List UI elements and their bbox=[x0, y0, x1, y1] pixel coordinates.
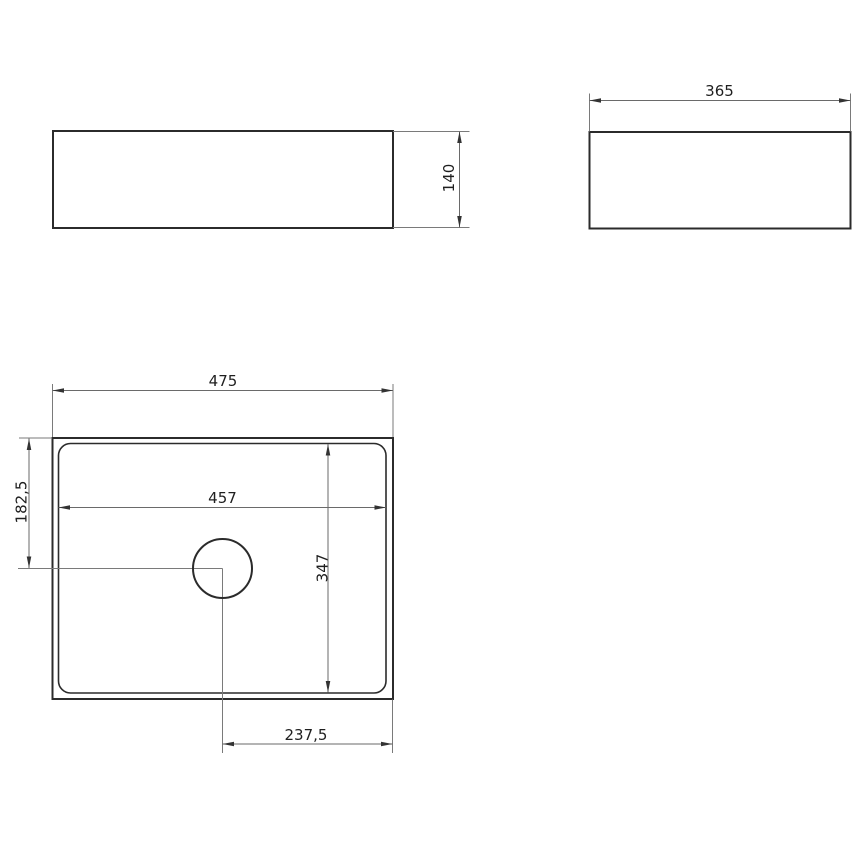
inner-depth-label: 347 bbox=[314, 554, 332, 583]
overall-width-label: 475 bbox=[209, 372, 238, 390]
front-view: 140 bbox=[53, 131, 470, 228]
front-height-label: 140 bbox=[440, 164, 458, 193]
side-view-outline bbox=[590, 132, 851, 229]
inner-width-label: 457 bbox=[208, 489, 237, 507]
drawing-canvas: 140 365 475 457 bbox=[0, 0, 868, 868]
drain-offset-bottom-label: 237,5 bbox=[285, 726, 328, 744]
plan-view: 475 457 182,5 347 237,5 bbox=[13, 372, 394, 753]
technical-drawing: 140 365 475 457 bbox=[0, 0, 868, 868]
drain-offset-side-label: 182,5 bbox=[13, 481, 31, 524]
front-view-outline bbox=[53, 131, 393, 228]
side-view: 365 bbox=[590, 82, 851, 229]
side-width-label: 365 bbox=[705, 82, 734, 100]
